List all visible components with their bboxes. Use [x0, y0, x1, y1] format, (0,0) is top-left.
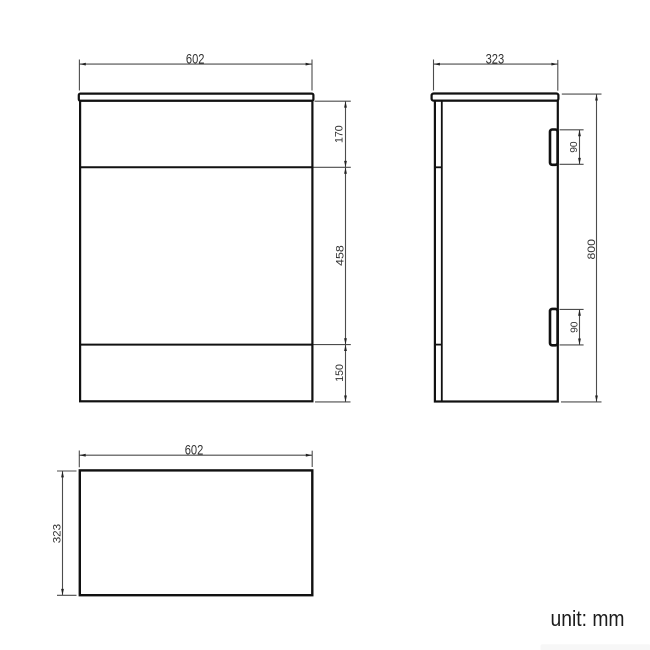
svg-text:602: 602	[186, 50, 205, 66]
svg-text:323: 323	[51, 524, 63, 543]
svg-text:90: 90	[569, 321, 580, 333]
svg-text:170: 170	[334, 125, 346, 143]
svg-text:458: 458	[334, 245, 346, 266]
svg-text:150: 150	[334, 364, 346, 382]
svg-text:602: 602	[185, 442, 204, 458]
svg-text:800: 800	[586, 239, 598, 259]
svg-text:323: 323	[486, 50, 505, 66]
svg-text:90: 90	[569, 141, 580, 153]
svg-text:unit: mm: unit: mm	[551, 606, 625, 631]
